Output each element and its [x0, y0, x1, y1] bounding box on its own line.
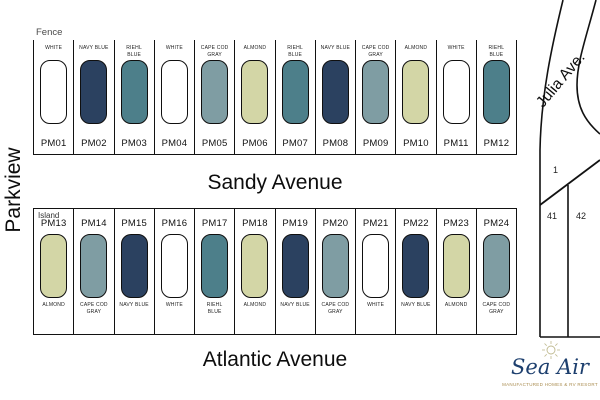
home-pad — [121, 60, 148, 124]
home-pad — [161, 234, 188, 298]
home-pad — [121, 234, 148, 298]
lot-pm02[interactable]: NAVY BLUEPM02 — [74, 40, 114, 154]
lot-color-label: CAPE COD GRAY — [79, 302, 109, 316]
lot-color-label: RIEHL BLUE — [481, 45, 511, 58]
home-pad — [402, 234, 429, 298]
lot-color-label: NAVY BLUE — [401, 302, 431, 309]
lot-color-label: WHITE — [441, 45, 471, 58]
lot-pm15[interactable]: PM15NAVY BLUE — [115, 209, 155, 334]
lot-pm07[interactable]: RIEHL BLUEPM07 — [276, 40, 316, 154]
lot-id-label: PM21 — [363, 218, 389, 229]
home-pad — [201, 234, 228, 298]
lot-color-label: RIEHL BLUE — [280, 45, 310, 58]
lot-id-label: PM02 — [81, 138, 107, 149]
home-pad — [483, 234, 510, 298]
lot-id-label: PM12 — [484, 138, 510, 149]
home-pad — [483, 60, 510, 124]
lot-pm09[interactable]: CAPE COD GRAYPM09 — [356, 40, 396, 154]
lot-pm24[interactable]: PM24CAPE COD GRAY — [477, 209, 516, 334]
lot-1[interactable]: 1 — [553, 165, 558, 175]
lot-id-label: PM10 — [403, 138, 429, 149]
lot-id-label: PM08 — [323, 138, 349, 149]
home-pad — [282, 60, 309, 124]
lot-id-label: PM18 — [242, 218, 268, 229]
lot-id-label: PM22 — [403, 218, 429, 229]
lot-id-label: PM17 — [202, 218, 228, 229]
home-pad — [80, 234, 107, 298]
lot-1-boundary-diagonal — [540, 160, 600, 205]
lot-row-sandy: WHITEPM01NAVY BLUEPM02RIEHL BLUEPM03WHIT… — [33, 40, 517, 155]
home-pad — [40, 60, 67, 124]
lot-pm16[interactable]: PM16WHITE — [155, 209, 195, 334]
lot-id-label: PM13 — [41, 218, 67, 229]
lot-color-label: WHITE — [159, 45, 189, 58]
lot-id-label: PM16 — [162, 218, 188, 229]
logo-name: Sea Air — [498, 355, 600, 379]
home-pad — [402, 60, 429, 124]
lot-pm21[interactable]: PM21WHITE — [356, 209, 396, 334]
home-pad — [443, 234, 470, 298]
lot-pm17[interactable]: PM17RIEHL BLUE — [195, 209, 235, 334]
lot-pm13[interactable]: PM13ALMOND — [34, 209, 74, 334]
lot-id-label: PM01 — [41, 138, 67, 149]
lot-row-atlantic: Island PM13ALMONDPM14CAPE COD GRAYPM15NA… — [33, 208, 517, 335]
lot-color-label: WHITE — [39, 45, 69, 58]
lot-pm22[interactable]: PM22NAVY BLUE — [396, 209, 436, 334]
lot-id-label: PM24 — [484, 218, 510, 229]
lot-color-label: NAVY BLUE — [79, 45, 109, 58]
lot-pm10[interactable]: ALMONDPM10 — [396, 40, 436, 154]
lot-pm06[interactable]: ALMONDPM06 — [235, 40, 275, 154]
lot-id-label: PM05 — [202, 138, 228, 149]
home-pad — [80, 60, 107, 124]
lot-color-label: NAVY BLUE — [280, 302, 310, 309]
home-pad — [322, 60, 349, 124]
lot-pm03[interactable]: RIEHL BLUEPM03 — [115, 40, 155, 154]
lot-color-label: ALMOND — [401, 45, 431, 58]
lot-pm19[interactable]: PM19NAVY BLUE — [276, 209, 316, 334]
home-pad — [241, 60, 268, 124]
lot-id-label: PM23 — [443, 218, 469, 229]
lot-pm18[interactable]: PM18ALMOND — [235, 209, 275, 334]
street-label-atlantic-avenue: Atlantic Avenue — [33, 348, 517, 372]
street-label-parkview: Parkview — [2, 128, 28, 252]
home-pad — [362, 234, 389, 298]
lot-pm14[interactable]: PM14CAPE COD GRAY — [74, 209, 114, 334]
lot-pm11[interactable]: WHITEPM11 — [437, 40, 477, 154]
lot-color-label: WHITE — [159, 302, 189, 309]
julia-ave-outer-edge — [540, 0, 563, 337]
lot-color-label: ALMOND — [240, 302, 270, 309]
lot-id-label: PM11 — [444, 138, 469, 149]
home-pad — [322, 234, 349, 298]
lot-pm23[interactable]: PM23ALMOND — [437, 209, 477, 334]
street-label-julia-ave: Julia Ave. — [519, 32, 600, 129]
home-pad — [40, 234, 67, 298]
home-pad — [201, 60, 228, 124]
sea-air-logo: Sea Air MANUFACTURED HOMES & RV RESORT — [498, 340, 600, 396]
lot-pm01[interactable]: WHITEPM01 — [34, 40, 74, 154]
lot-color-label: NAVY BLUE — [320, 45, 350, 58]
home-pad — [443, 60, 470, 124]
lot-id-label: PM09 — [363, 138, 389, 149]
lot-id-label: PM15 — [121, 218, 147, 229]
lot-color-label: RIEHL BLUE — [119, 45, 149, 58]
lot-color-label: CAPE COD GRAY — [320, 302, 350, 316]
home-pad — [362, 60, 389, 124]
lot-id-label: PM03 — [121, 138, 147, 149]
lot-42[interactable]: 42 — [576, 211, 586, 221]
lot-id-label: PM07 — [282, 138, 308, 149]
lot-id-label: PM20 — [323, 218, 349, 229]
lot-color-label: ALMOND — [240, 45, 270, 58]
lot-pm08[interactable]: NAVY BLUEPM08 — [316, 40, 356, 154]
lot-color-label: CAPE COD GRAY — [200, 45, 230, 58]
home-pad — [241, 234, 268, 298]
lot-id-label: PM06 — [242, 138, 268, 149]
home-pad — [161, 60, 188, 124]
fence-label: Fence — [36, 27, 62, 38]
lot-color-label: CAPE COD GRAY — [481, 302, 511, 316]
lot-color-label: ALMOND — [441, 302, 471, 309]
lot-color-label: CAPE COD GRAY — [361, 45, 391, 58]
lot-pm12[interactable]: RIEHL BLUEPM12 — [477, 40, 516, 154]
community-lot-map: Parkview Fence WHITEPM01NAVY BLUEPM02RIE… — [0, 0, 600, 400]
lot-id-label: PM04 — [162, 138, 188, 149]
lot-pm20[interactable]: PM20CAPE COD GRAY — [316, 209, 356, 334]
lot-color-label: WHITE — [361, 302, 391, 309]
lot-color-label: RIEHL BLUE — [200, 302, 230, 316]
home-pad — [282, 234, 309, 298]
lot-pm04[interactable]: WHITEPM04 — [155, 40, 195, 154]
logo-tagline: MANUFACTURED HOMES & RV RESORT — [498, 382, 600, 387]
lot-pm05[interactable]: CAPE COD GRAYPM05 — [195, 40, 235, 154]
lot-41[interactable]: 41 — [547, 211, 557, 221]
lot-color-label: NAVY BLUE — [119, 302, 149, 309]
lot-id-label: PM19 — [282, 218, 308, 229]
lot-id-label: PM14 — [81, 218, 107, 229]
street-label-sandy-avenue: Sandy Avenue — [33, 171, 517, 195]
lot-color-label: ALMOND — [39, 302, 69, 309]
